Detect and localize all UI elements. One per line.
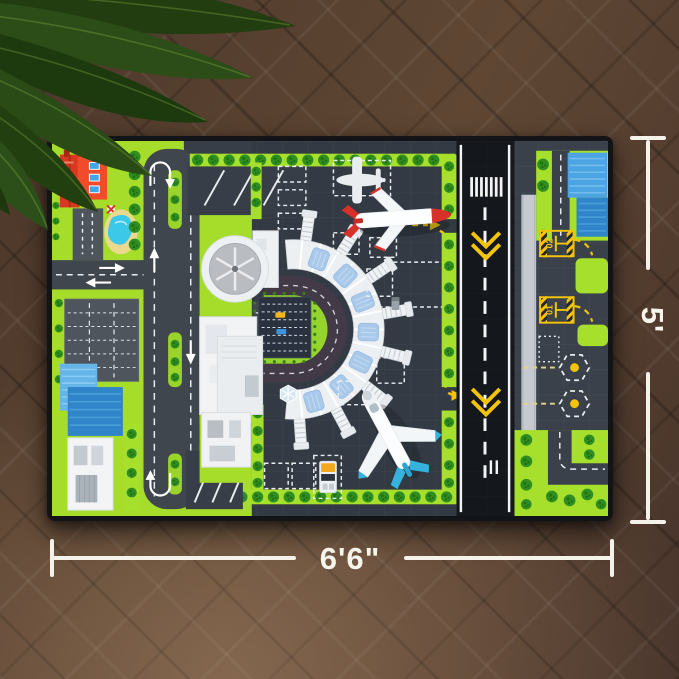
taxiway-strip [521,195,536,431]
runway [456,141,514,516]
height-dimension-label: 5' [626,290,670,350]
houseplant-leaves [0,0,310,250]
holding-point-label: 01 [544,305,554,315]
warehouse-building [68,438,113,510]
dim-line [646,140,650,270]
dim-line [52,556,296,560]
fountain-icon [280,385,296,403]
dim-line [404,556,612,560]
yellow-car-icon [275,312,285,317]
blue-car-icon [276,329,286,334]
dim-line [646,372,650,520]
service-truck-icon [392,297,400,310]
dim-cap [610,539,614,577]
product-photo: 02 01 [0,0,679,679]
right-district: 02 01 [515,141,608,516]
runway-divider-green [442,155,457,491]
dim-cap [630,520,666,524]
fuel-truck-icon [320,461,337,492]
holding-point-label: 02 [544,239,554,249]
right-bottom-park [515,430,608,516]
tree-strip-apron-left [252,405,264,491]
width-dimension-label: 6'6" [296,541,404,577]
